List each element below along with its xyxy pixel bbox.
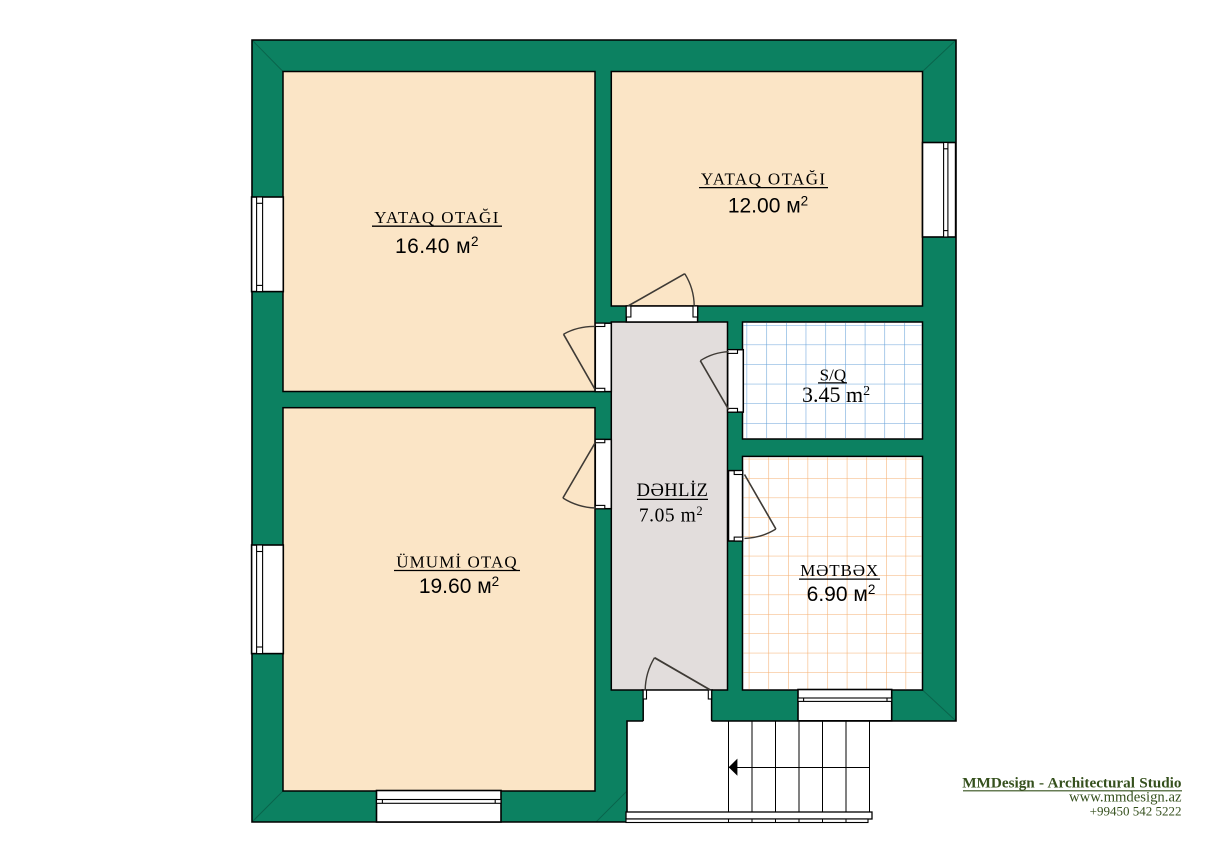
svg-text:YATAQ OTAĞI: YATAQ OTAĞI <box>701 169 827 188</box>
svg-text:6.90 м2: 6.90 м2 <box>807 582 876 606</box>
svg-text:16.40 м2: 16.40 м2 <box>395 234 479 258</box>
svg-text:MƏTBƏX: MƏTBƏX <box>800 561 879 580</box>
svg-text:DƏHLİZ: DƏHLİZ <box>637 480 709 501</box>
svg-text:12.00 м2: 12.00 м2 <box>728 194 808 218</box>
svg-text:19.60 м2: 19.60 м2 <box>419 574 499 598</box>
svg-text:3.45 m2: 3.45 m2 <box>802 382 870 407</box>
svg-text:YATAQ OTAĞI: YATAQ OTAĞI <box>374 208 500 227</box>
svg-text:7.05 m2: 7.05 m2 <box>639 504 703 527</box>
svg-text:+99450 542 5222: +99450 542 5222 <box>1090 803 1182 818</box>
svg-text:ÜMUMİ OTAQ: ÜMUMİ OTAQ <box>396 552 518 571</box>
